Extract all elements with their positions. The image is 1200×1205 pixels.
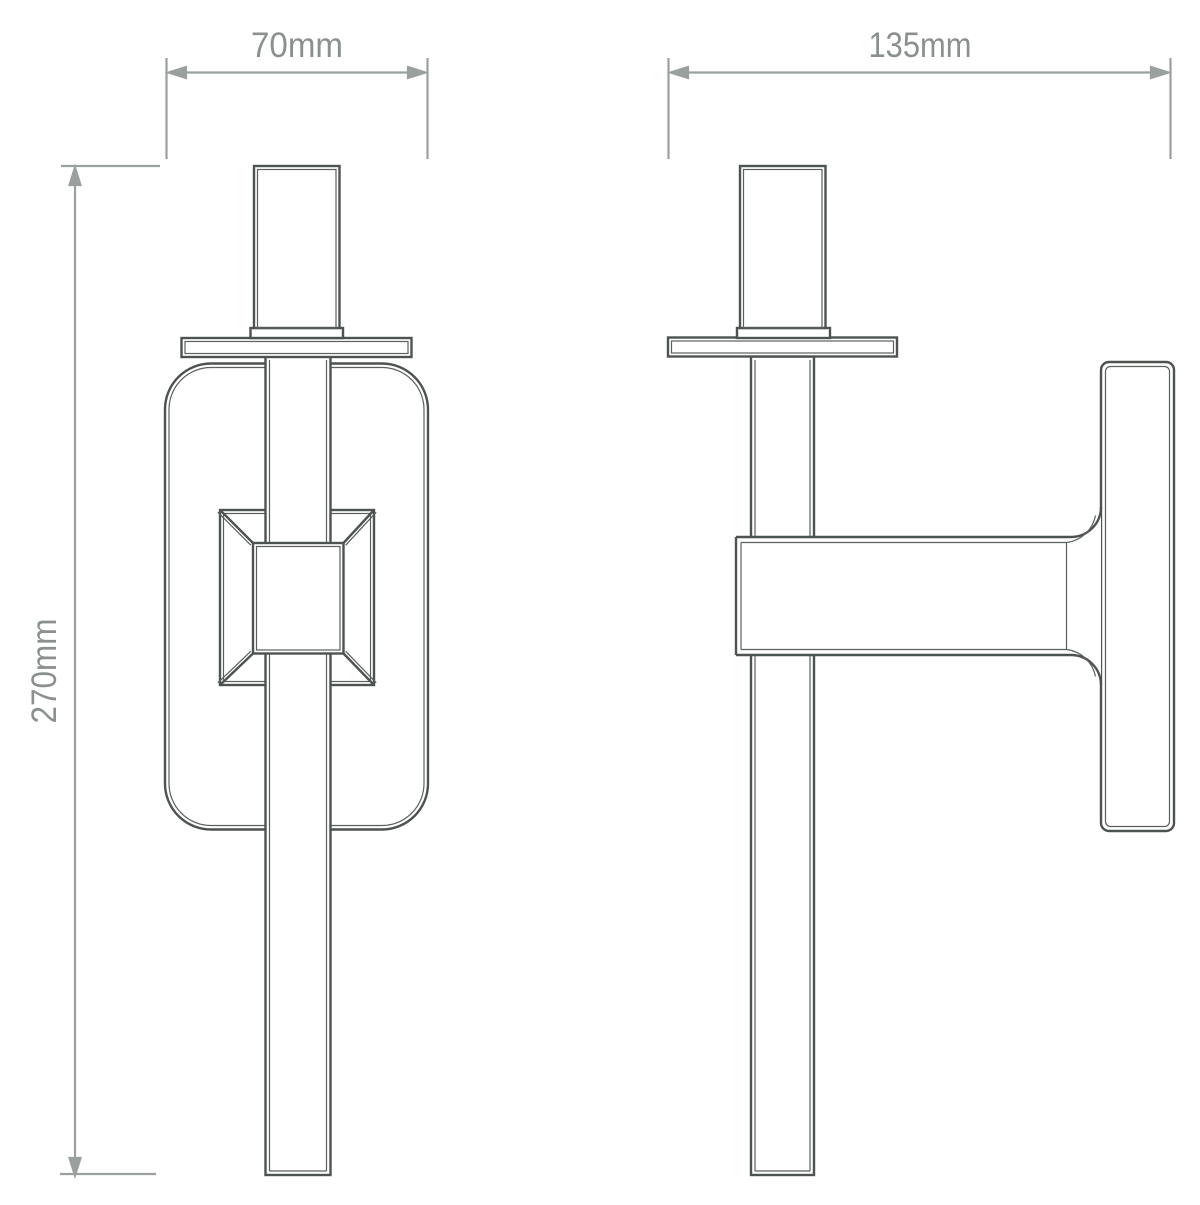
svg-text:70mm: 70mm <box>251 26 343 65</box>
svg-text:135mm: 135mm <box>869 26 972 65</box>
svg-text:270mm: 270mm <box>25 619 64 724</box>
